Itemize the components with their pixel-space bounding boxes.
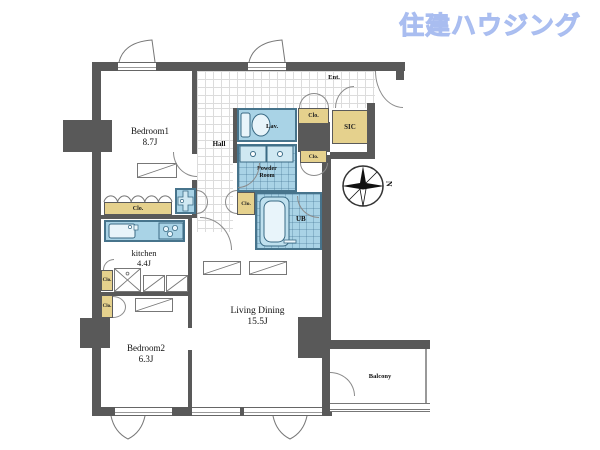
wall-sic-right [367,103,375,159]
furniture-bedroom1 [137,163,177,178]
closet-bedroom2-door-arc [113,296,126,307]
window-top-hall [248,62,286,71]
closet-bedroom1: Clo. [104,202,172,215]
furniture-kitchen-2 [166,275,188,292]
window-mullion [240,407,244,416]
closet-bedroom2-door-arc [113,307,126,318]
wall-balcony-top [330,340,430,349]
kitchen-sink-icon [109,223,139,239]
refrigerator-space [114,268,141,292]
floor-plan: 住建ハウジング Lav. [0,0,600,450]
closet-entrance: Clo. [298,108,329,124]
powder-sinks-icon [240,146,294,163]
living-dining-label: Living Dining 15.5J [200,306,315,329]
company-logo: 住建ハウジング [390,6,590,42]
window-bottom-bedroom2 [115,407,172,416]
bedroom2-label: Bedroom2 6.3J [103,343,189,365]
bedroom1-label: Bedroom1 8.7J [107,126,193,148]
pillar-entrance [298,122,330,152]
casement-window-icon [246,38,288,62]
closet-powder-side: Clo. [300,150,327,163]
lavatory-label: Lav. [266,123,278,131]
pillar-top-left [63,120,112,152]
stove-icon [159,223,184,240]
swing-window-icon [110,416,146,441]
balcony-label: Balcony [358,373,402,381]
kitchen-label: kitchen 4.4J [100,248,188,268]
window-top-bedroom1 [118,62,156,71]
closet-powder-door-arc [300,163,314,176]
furniture-kitchen-1 [143,275,165,292]
swing-window-icon [272,416,308,441]
hanger-pipe-icon [104,186,172,202]
faucet-icon [284,238,296,245]
wall-bedroom1-kitchen [101,215,192,219]
hall-label: Hall [204,140,234,148]
closet-bedroom2-left: Clo. [101,295,113,318]
entrance-door-arc [375,71,403,108]
wall-kitchen-living [188,219,192,296]
closet-hall-south: Clo. [237,192,255,215]
furniture-living-1 [203,261,241,275]
shoe-in-closet: SIC [332,110,368,144]
window-bottom-living [192,407,322,416]
wall-bedroom2-living-upper [188,296,192,328]
furniture-living-2 [249,261,287,275]
wall-below-sic [330,152,375,159]
compass-north-label: N [384,181,394,187]
wall-left [92,62,101,416]
furniture-bedroom2 [135,298,173,312]
closet-kitchen-left: Clo. [101,270,113,291]
casement-window-icon [116,38,158,62]
unit-bath-label: UB [296,215,306,223]
entrance-label: Ent. [322,74,346,82]
balcony-railing [330,403,430,412]
washer-icon [178,191,193,211]
hall-floor-tiles [197,108,233,232]
